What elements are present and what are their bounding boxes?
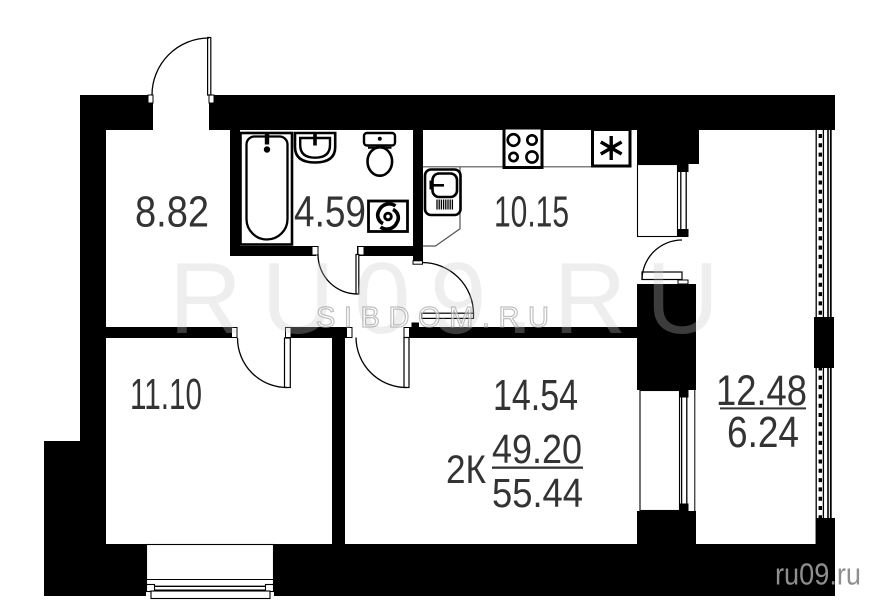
svg-text:6.24: 6.24 bbox=[727, 409, 799, 457]
svg-text:8.82: 8.82 bbox=[135, 189, 209, 237]
svg-text:ru09.ru: ru09.ru bbox=[775, 557, 861, 592]
svg-text:SIBDOM.RU: SIBDOM.RU bbox=[316, 302, 549, 334]
svg-text:4.59: 4.59 bbox=[294, 189, 366, 237]
svg-text:49.20: 49.20 bbox=[492, 426, 582, 472]
svg-text:14.54: 14.54 bbox=[493, 372, 578, 420]
svg-text:2К: 2К bbox=[446, 448, 487, 492]
svg-text:55.44: 55.44 bbox=[492, 470, 583, 516]
svg-text:10.15: 10.15 bbox=[494, 189, 569, 237]
svg-text:11.10: 11.10 bbox=[130, 371, 202, 419]
